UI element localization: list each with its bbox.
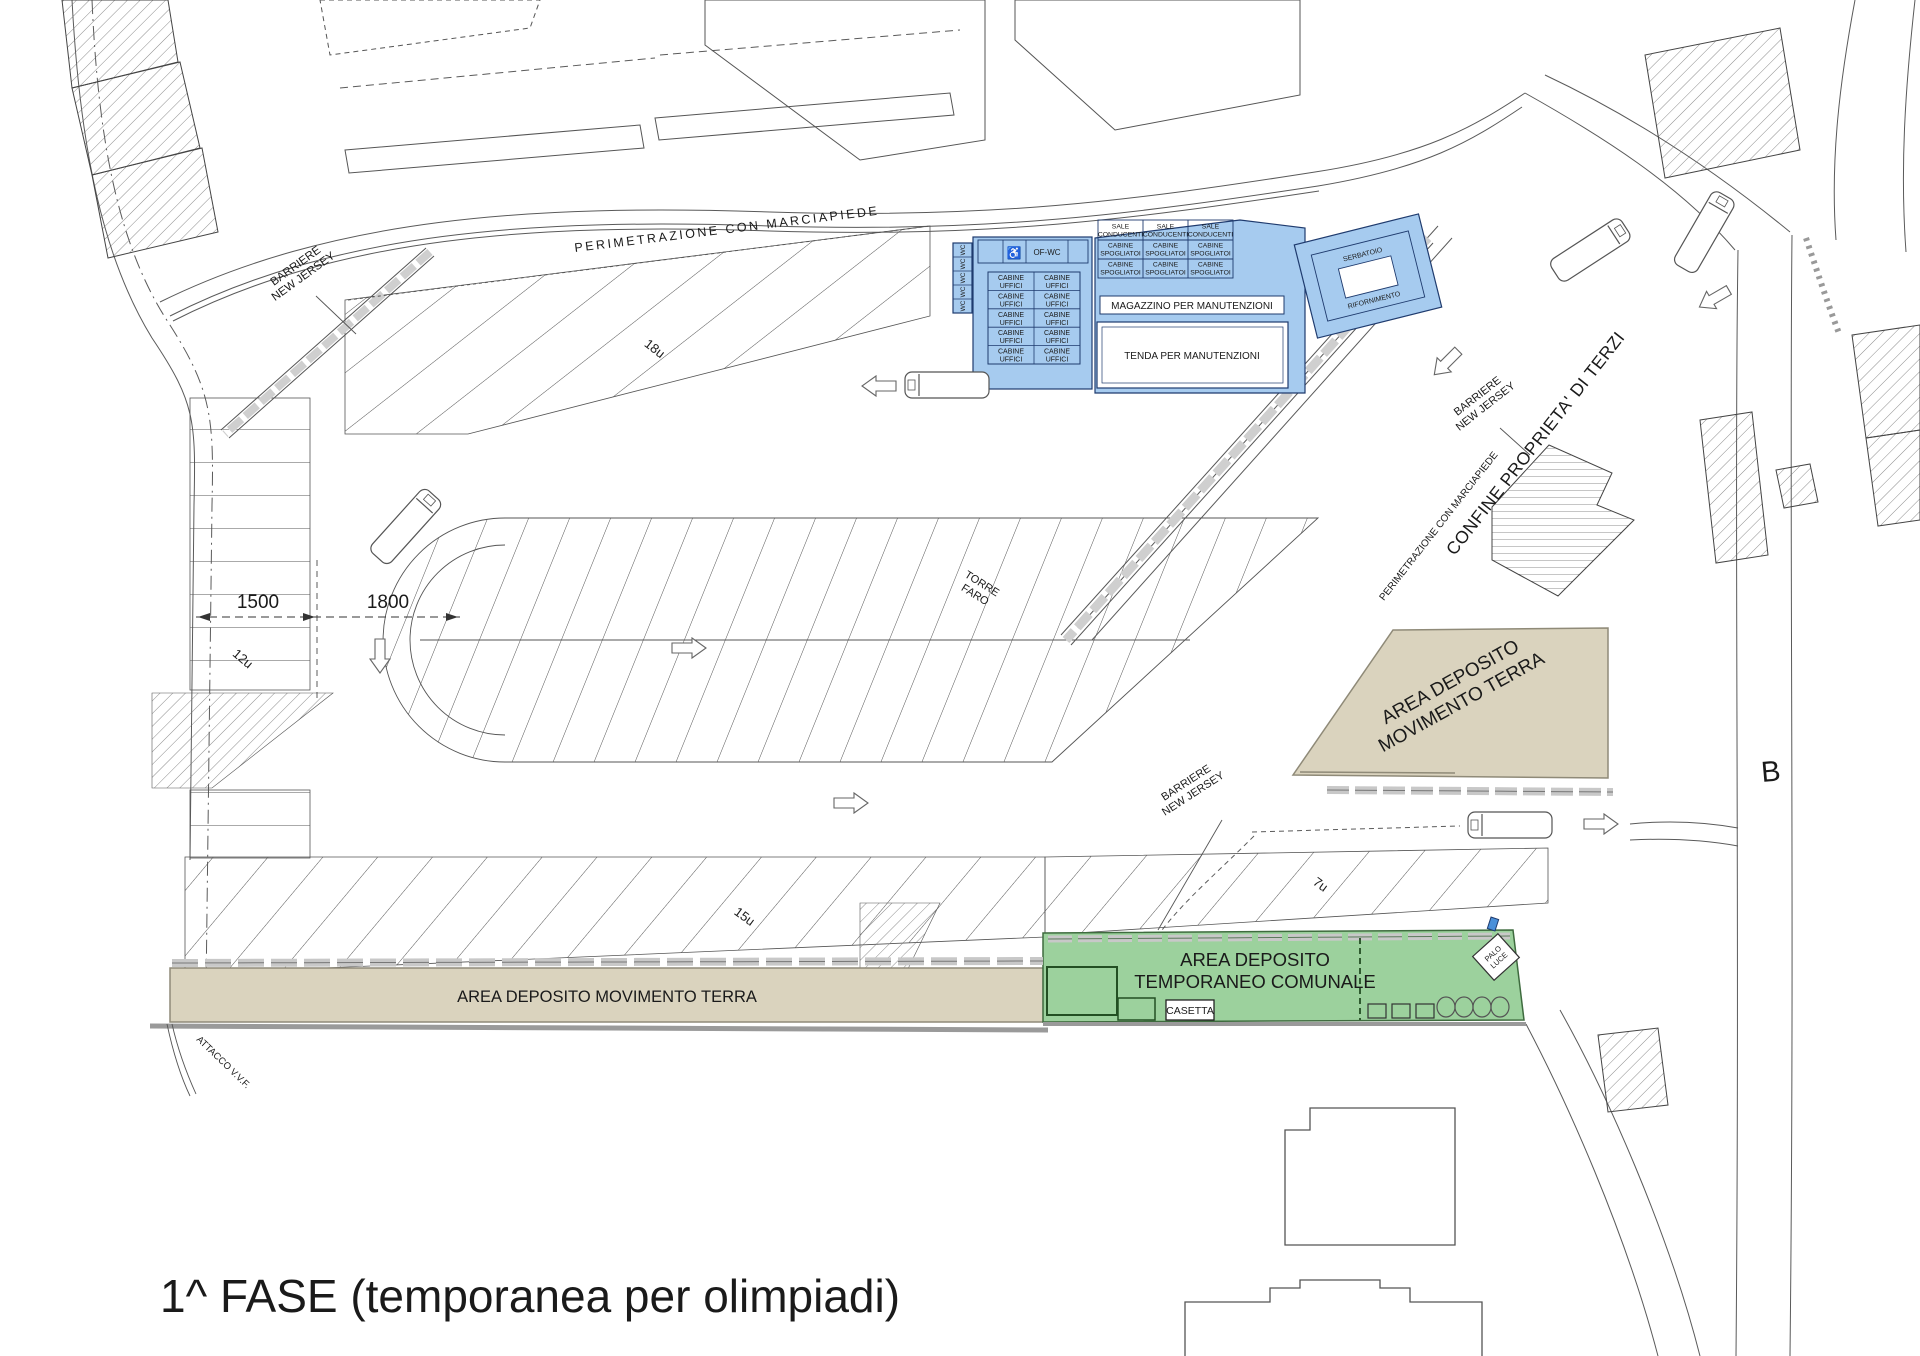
cabine-spogliatoi-cell: SPOGLIATOI <box>1100 270 1141 277</box>
area-deposito-right-innerline <box>1300 772 1455 773</box>
parking-column-12u-lower <box>190 790 310 858</box>
existing-building <box>1047 967 1117 1015</box>
cabine-spogliatoi-cell: CABINE <box>1153 262 1179 269</box>
wc-label: WC <box>960 272 967 283</box>
cabine-uffici-cell: CABINE <box>998 349 1024 356</box>
cabine-uffici-cell: CABINE <box>998 293 1024 300</box>
site-plan-canvas: PALO LUCE CASETTA WC WC WC WC WC ♿ OF-WC… <box>0 0 1920 1356</box>
hydrant-marker <box>1487 917 1498 931</box>
parking-band-7u <box>1045 848 1548 935</box>
cabine-spogliatoi-cell: SPOGLIATOI <box>1190 270 1231 277</box>
parking-areas <box>152 226 1548 975</box>
cabine-uffici-cell: CABINE <box>998 275 1024 282</box>
cabine-uffici-cell: UFFICI <box>1046 357 1069 364</box>
cabine-spogliatoi-cell: CABINE <box>1198 262 1224 269</box>
cabine-uffici-cell: UFFICI <box>1000 338 1023 345</box>
cabine-spogliatoi-cell: SPOGLIATOI <box>1145 251 1186 258</box>
attacco-vvf-label: ATTACCO V.V.F. <box>194 1034 252 1091</box>
parking-column-12u <box>190 398 310 690</box>
cabine-uffici-cell: UFFICI <box>1046 283 1069 290</box>
cabine-uffici-cell: CABINE <box>998 330 1024 337</box>
sale-conducenti-cell: SALE <box>1202 224 1220 231</box>
casetta-label: CASETTA <box>1166 1005 1214 1017</box>
cabine-uffici-cell: CABINE <box>1044 330 1070 337</box>
sale-conducenti-cell: CONDUCENTI <box>1143 232 1188 239</box>
bus-topright-2 <box>1672 189 1737 275</box>
area-deposito-bottom-label: AREA DEPOSITO MOVIMENTO TERRA <box>457 988 757 1006</box>
cabine-spogliatoi-cell: SPOGLIATOI <box>1190 251 1231 258</box>
cabine-spogliatoi-cell: CABINE <box>1198 243 1224 250</box>
bus-topright-1 <box>1548 216 1633 284</box>
cabine-uffici-cell: CABINE <box>1044 275 1070 282</box>
site-plan-svg: PALO LUCE CASETTA WC WC WC WC WC ♿ OF-WC… <box>0 0 1920 1356</box>
sale-conducenti-cell: SALE <box>1157 224 1175 231</box>
sale-conducenti-cell: CONDUCENTI <box>1098 232 1143 239</box>
wc-label: WC <box>960 244 967 255</box>
cabine-uffici-cell: UFFICI <box>1000 301 1023 308</box>
wheelchair-icon: ♿ <box>1007 246 1022 260</box>
plan-title: 1^ FASE (temporanea per olimpiadi) <box>160 1270 900 1322</box>
cabine-uffici-cell: UFFICI <box>1000 283 1023 290</box>
cabine-uffici-cell: CABINE <box>1044 349 1070 356</box>
serbatoio-wing: SERBATOIO RIFORNIMENTO <box>1294 214 1441 338</box>
wc-label: WC <box>960 258 967 269</box>
bus-middle <box>905 372 989 398</box>
barriere-label-topleft: BARRIERE NEW JERSEY <box>262 239 337 303</box>
cabine-spogliatoi-cell: SPOGLIATOI <box>1145 270 1186 277</box>
cabine-spogliatoi-cell: CABINE <box>1108 243 1134 250</box>
hatched-wedge <box>152 693 333 788</box>
cabine-spogliatoi-cell: SPOGLIATOI <box>1100 251 1141 258</box>
arrow-left <box>862 376 896 396</box>
arrow-right <box>834 793 868 813</box>
cabine-uffici-cell: UFFICI <box>1046 320 1069 327</box>
wc-label: WC <box>960 300 967 311</box>
cabine-uffici-cell: CABINE <box>998 312 1024 319</box>
ofwc-row: ♿ OF-WC <box>978 240 1088 263</box>
arrow-down-left <box>1694 281 1733 315</box>
magazzino-label: MAGAZZINO PER MANUTENZIONI <box>1111 301 1273 312</box>
cabine-uffici-cell: UFFICI <box>1046 338 1069 345</box>
facility-complex: WC WC WC WC WC ♿ OF-WC CABINEUFFICI CABI… <box>953 214 1442 393</box>
barriere-label-bottom: BARRIERE NEW JERSEY <box>1153 758 1227 818</box>
barriere-label-right: BARRIERE NEW JERSEY <box>1446 369 1518 433</box>
ofwc-label: OF-WC <box>1033 248 1060 257</box>
cabine-uffici-cell: UFFICI <box>1000 320 1023 327</box>
small-annex <box>1118 998 1155 1020</box>
cabine-uffici-cell: UFFICI <box>1000 357 1023 364</box>
tenda-label: TENDA PER MANUTENZIONI <box>1124 351 1260 362</box>
cabine-uffici-cell: UFFICI <box>1046 301 1069 308</box>
sale-conducenti-cell: SALE <box>1112 224 1130 231</box>
temporaneo-line2: TEMPORANEO COMUNALE <box>1134 971 1376 992</box>
sale-conducenti-cell: CONDUCENTI <box>1188 232 1233 239</box>
casetta-box: CASETTA <box>1166 1000 1214 1020</box>
dim-1500-label: 1500 <box>237 592 279 613</box>
cabine-spogliatoi-cell: CABINE <box>1153 243 1179 250</box>
bus-bottomright <box>1468 812 1552 838</box>
temporaneo-line1: AREA DEPOSITO <box>1180 949 1330 970</box>
wc-label: WC <box>960 286 967 297</box>
cabine-uffici-cell: CABINE <box>1044 312 1070 319</box>
cabine-spogliatoi-cell: CABINE <box>1108 262 1134 269</box>
plan-marker-b: B <box>1760 755 1782 789</box>
cabine-uffici-cell: CABINE <box>1044 293 1070 300</box>
dim-1800-label: 1800 <box>367 592 409 613</box>
arrow-down-left <box>1427 344 1465 382</box>
arrow-right <box>1584 814 1618 834</box>
